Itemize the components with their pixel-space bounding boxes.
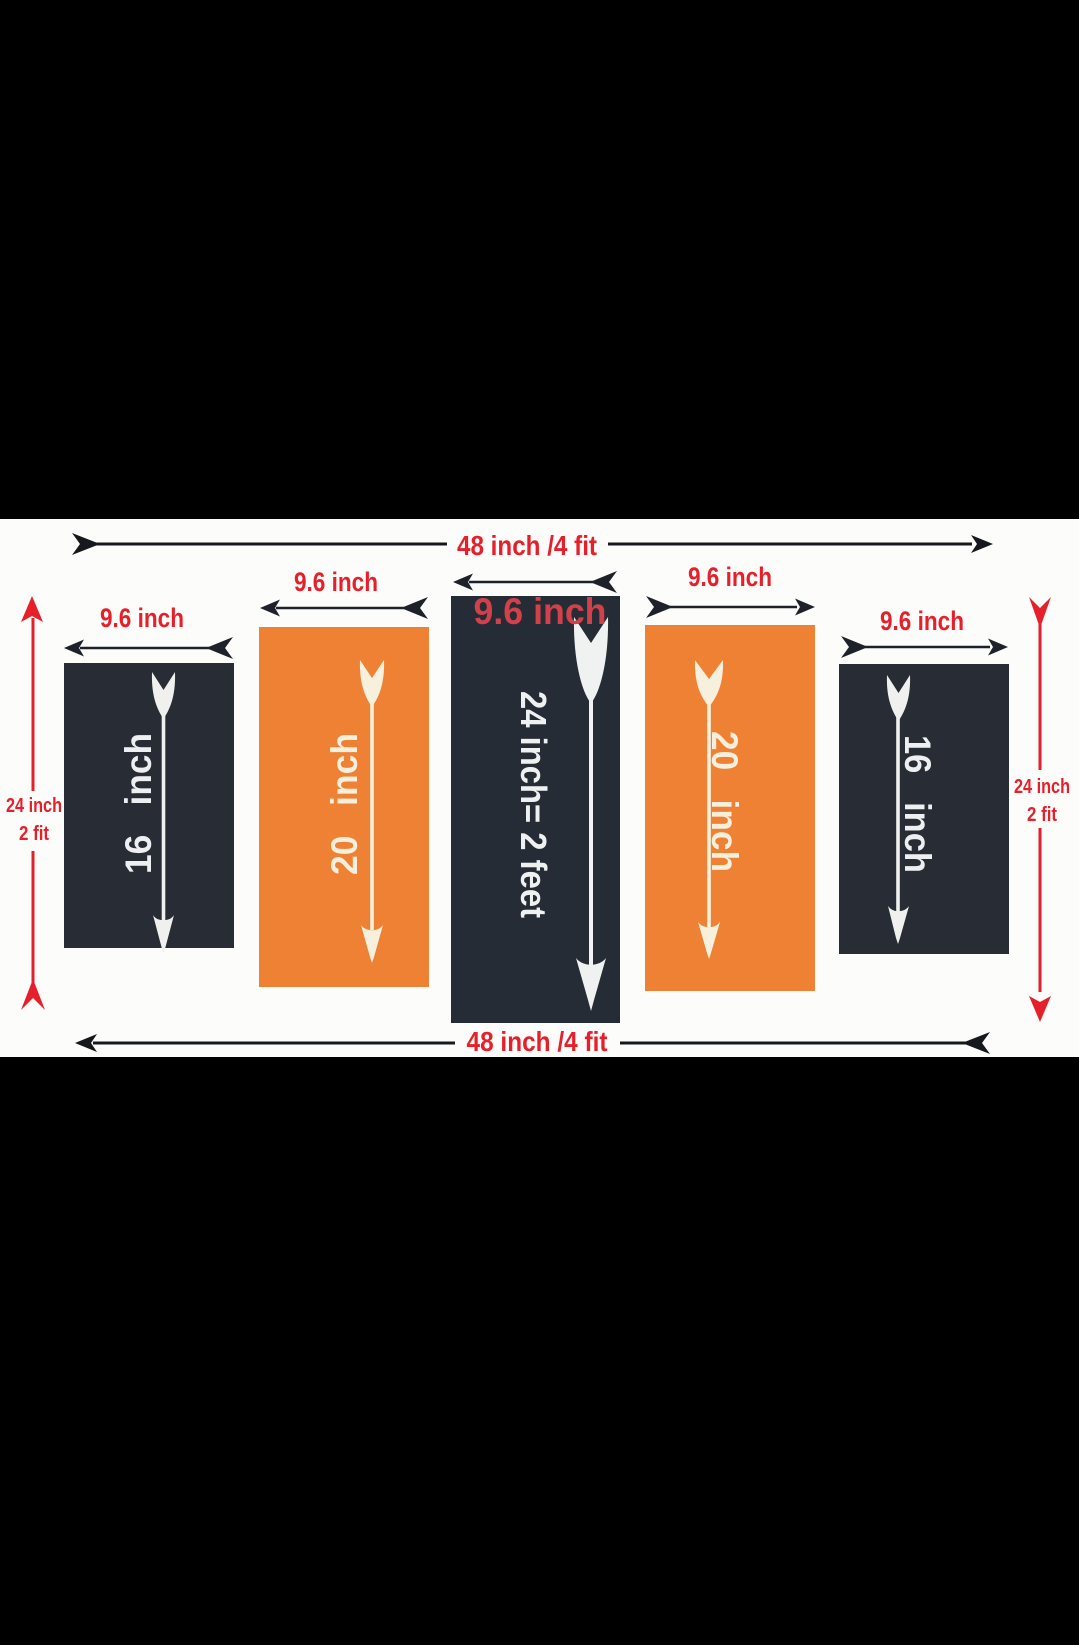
svg-text:16 inch: 16 inch: [118, 733, 159, 874]
svg-text:24 inch: 24 inch: [1014, 776, 1070, 798]
svg-text:16 inch: 16 inch: [897, 735, 938, 873]
svg-text:20 inch: 20 inch: [704, 731, 745, 872]
svg-text:9.6 inch: 9.6 inch: [474, 591, 607, 632]
svg-text:2 fit: 2 fit: [1027, 804, 1057, 826]
svg-text:24 inch: 24 inch: [6, 795, 62, 817]
svg-text:9.6 inch: 9.6 inch: [294, 567, 378, 597]
svg-text:9.6 inch: 9.6 inch: [100, 603, 184, 633]
svg-text:48 inch /4 fit: 48 inch /4 fit: [457, 530, 597, 561]
svg-text:24 inch= 2 feet: 24 inch= 2 feet: [513, 691, 554, 918]
svg-text:2 fit: 2 fit: [19, 823, 49, 845]
svg-text:20 inch: 20 inch: [324, 733, 365, 875]
svg-text:9.6 inch: 9.6 inch: [880, 606, 964, 636]
svg-text:9.6 inch: 9.6 inch: [688, 562, 772, 592]
svg-text:48 inch /4 fit: 48 inch /4 fit: [467, 1026, 608, 1057]
